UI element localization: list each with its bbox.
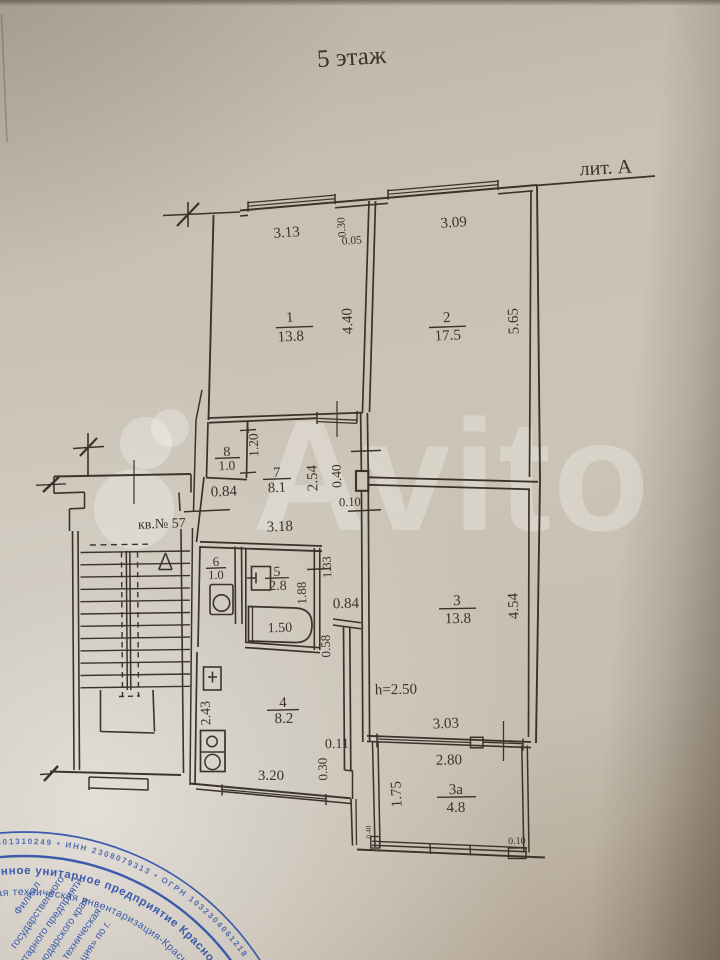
svg-text:13.8: 13.8 [277, 328, 304, 345]
svg-text:1.0: 1.0 [218, 458, 236, 474]
svg-text:5 этаж: 5 этаж [316, 42, 387, 73]
svg-text:0.05: 0.05 [341, 234, 362, 247]
svg-text:4: 4 [279, 695, 287, 711]
svg-text:2.54: 2.54 [305, 464, 322, 491]
svg-text:3.13: 3.13 [273, 224, 300, 242]
svg-text:3.18: 3.18 [266, 519, 293, 536]
svg-text:2.80: 2.80 [436, 752, 463, 768]
svg-text:4.54: 4.54 [506, 592, 523, 619]
svg-text:0.84: 0.84 [333, 596, 360, 612]
svg-text:0.58: 0.58 [318, 635, 334, 658]
svg-text:4.8: 4.8 [446, 800, 465, 816]
svg-text:1: 1 [286, 310, 294, 326]
svg-text:0.10: 0.10 [508, 836, 526, 848]
svg-text:8.1: 8.1 [268, 480, 287, 497]
svg-text:8.2: 8.2 [274, 711, 293, 727]
svg-text:3.20: 3.20 [258, 768, 284, 784]
svg-text:2: 2 [443, 310, 451, 326]
svg-text:1.50: 1.50 [268, 621, 293, 636]
svg-text:3.03: 3.03 [432, 716, 459, 733]
svg-text:0.10: 0.10 [339, 495, 361, 510]
svg-text:0.40: 0.40 [364, 825, 373, 839]
svg-text:лит. А: лит. А [579, 156, 633, 181]
svg-text:17.5: 17.5 [434, 327, 461, 344]
svg-text:1.33: 1.33 [320, 556, 335, 578]
svg-text:13.8: 13.8 [445, 611, 472, 627]
svg-text:0.84: 0.84 [210, 484, 237, 501]
svg-text:6: 6 [213, 554, 220, 569]
svg-text:кв.№ 57: кв.№ 57 [138, 516, 186, 533]
svg-text:3.09: 3.09 [440, 214, 467, 232]
svg-text:3: 3 [453, 593, 461, 609]
svg-text:2.8: 2.8 [269, 579, 287, 594]
svg-text:1.75: 1.75 [388, 781, 405, 808]
svg-text:0.11: 0.11 [325, 737, 349, 752]
svg-text:0.40: 0.40 [329, 464, 345, 488]
svg-text:4.40: 4.40 [340, 308, 357, 335]
svg-text:2.43: 2.43 [199, 701, 215, 726]
svg-text:3а: 3а [449, 782, 464, 798]
svg-text:1.88: 1.88 [294, 582, 310, 605]
svg-text:1.20: 1.20 [246, 433, 262, 457]
svg-text:1.0: 1.0 [208, 568, 224, 582]
svg-text:0.30: 0.30 [315, 758, 331, 781]
svg-text:h=2.50: h=2.50 [375, 682, 417, 699]
svg-text:5.65: 5.65 [505, 308, 522, 335]
